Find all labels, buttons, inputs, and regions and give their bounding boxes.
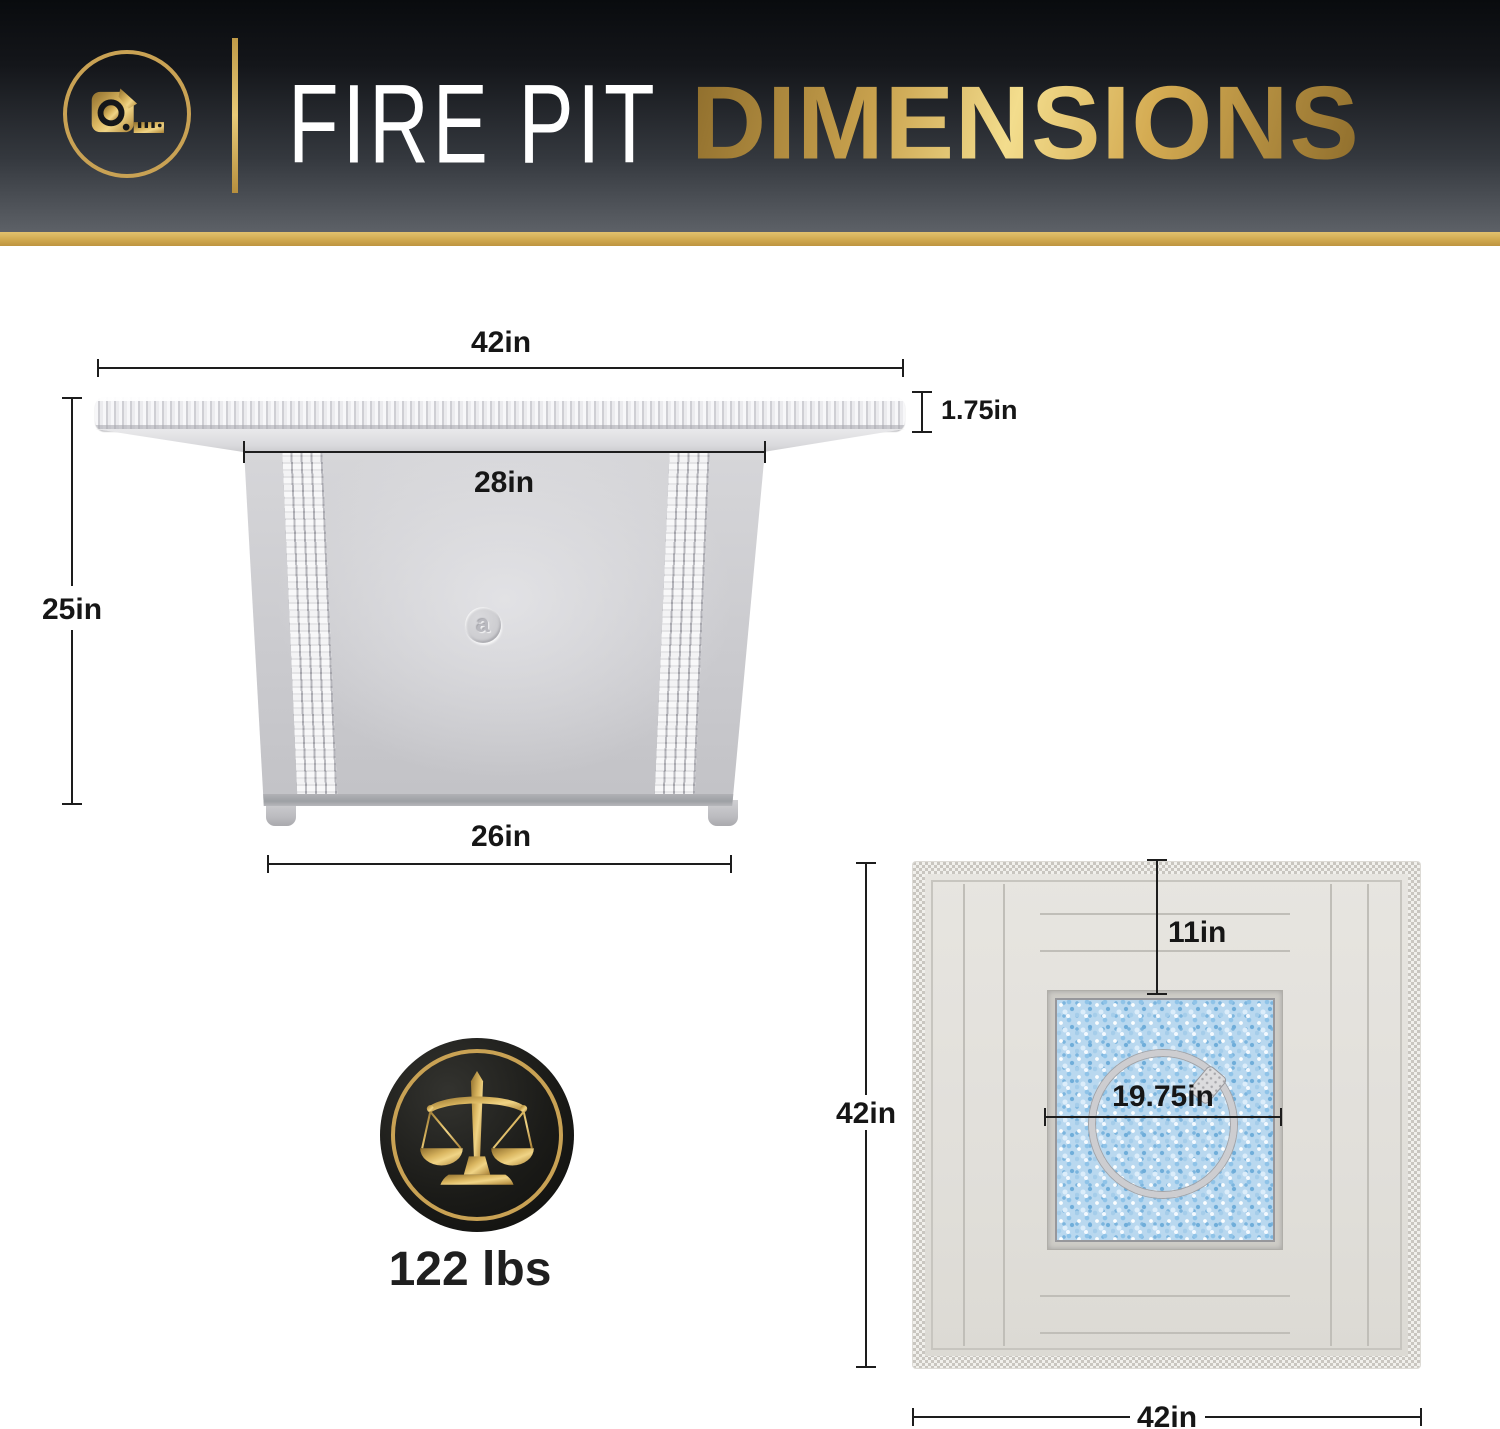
dim-side-length-label: 42in (836, 1097, 896, 1131)
base-bottom-rail (244, 794, 765, 806)
dim-bottom-width-label: 42in (1137, 1401, 1197, 1429)
balance-scale-icon (415, 1067, 539, 1204)
plank-groove (963, 884, 965, 1346)
dimension-line (71, 630, 73, 804)
dimension-tick (730, 855, 732, 873)
dim-frame-width-label: 28in (474, 466, 534, 500)
brand-emboss-letter: a (476, 611, 489, 639)
fire-pit-dimensions-infographic: FIRE PIT DIMENSIONS 42in 1.75in a (0, 0, 1500, 1429)
tabletop-side (95, 397, 905, 431)
dimension-line (268, 863, 732, 865)
plank-groove (1003, 884, 1005, 1346)
wicker-texture (282, 450, 338, 806)
dimension-tick (912, 431, 932, 433)
dimension-line (921, 391, 923, 433)
dimension-line (913, 1416, 1130, 1418)
header-divider (232, 38, 238, 193)
dimension-tick (62, 803, 82, 805)
dimension-tick (764, 441, 766, 463)
dimension-line (98, 367, 904, 369)
dim-top-width-label: 42in (471, 326, 531, 360)
dimension-tick (1420, 1408, 1422, 1426)
dimension-line (865, 1130, 867, 1368)
plank-groove (1040, 950, 1290, 952)
title-dimensions: DIMENSIONS (691, 65, 1360, 184)
dimension-line (1156, 860, 1158, 994)
dimension-line (1205, 1416, 1422, 1418)
weight-badge (380, 1038, 574, 1232)
header-banner: FIRE PIT DIMENSIONS (0, 0, 1500, 232)
dimension-tick (1280, 1108, 1282, 1126)
dim-height-label: 25in (42, 593, 102, 627)
plank-groove (1040, 1295, 1290, 1297)
brand-emboss-logo: a (465, 607, 501, 643)
dimension-tick (902, 359, 904, 377)
tabletop-underside (95, 429, 905, 452)
dimension-tick (1147, 993, 1167, 995)
dim-thickness-label: 1.75in (941, 395, 1018, 426)
plank-groove (1330, 884, 1332, 1346)
dimension-line (1045, 1116, 1281, 1118)
plank-groove (1367, 884, 1369, 1346)
header-logo-badge (63, 50, 191, 178)
table-base-side (244, 450, 765, 806)
dim-base-width-label: 26in (471, 820, 531, 854)
wicker-texture (654, 450, 710, 806)
dimension-line (243, 451, 766, 453)
header-gold-bar (0, 232, 1500, 246)
dimension-tick (856, 1366, 876, 1368)
weight-value: 122 lbs (389, 1242, 552, 1297)
title-fire-pit: FIRE PIT (288, 60, 658, 189)
dim-glass-inset-label: 11in (1168, 916, 1226, 950)
dimension-line (865, 863, 867, 1095)
plank-groove (1040, 1332, 1290, 1334)
tape-measure-icon (85, 81, 169, 148)
dimension-line (71, 398, 73, 586)
dim-burner-width-label: 19.75in (1112, 1080, 1214, 1114)
plank-groove (1040, 913, 1290, 915)
